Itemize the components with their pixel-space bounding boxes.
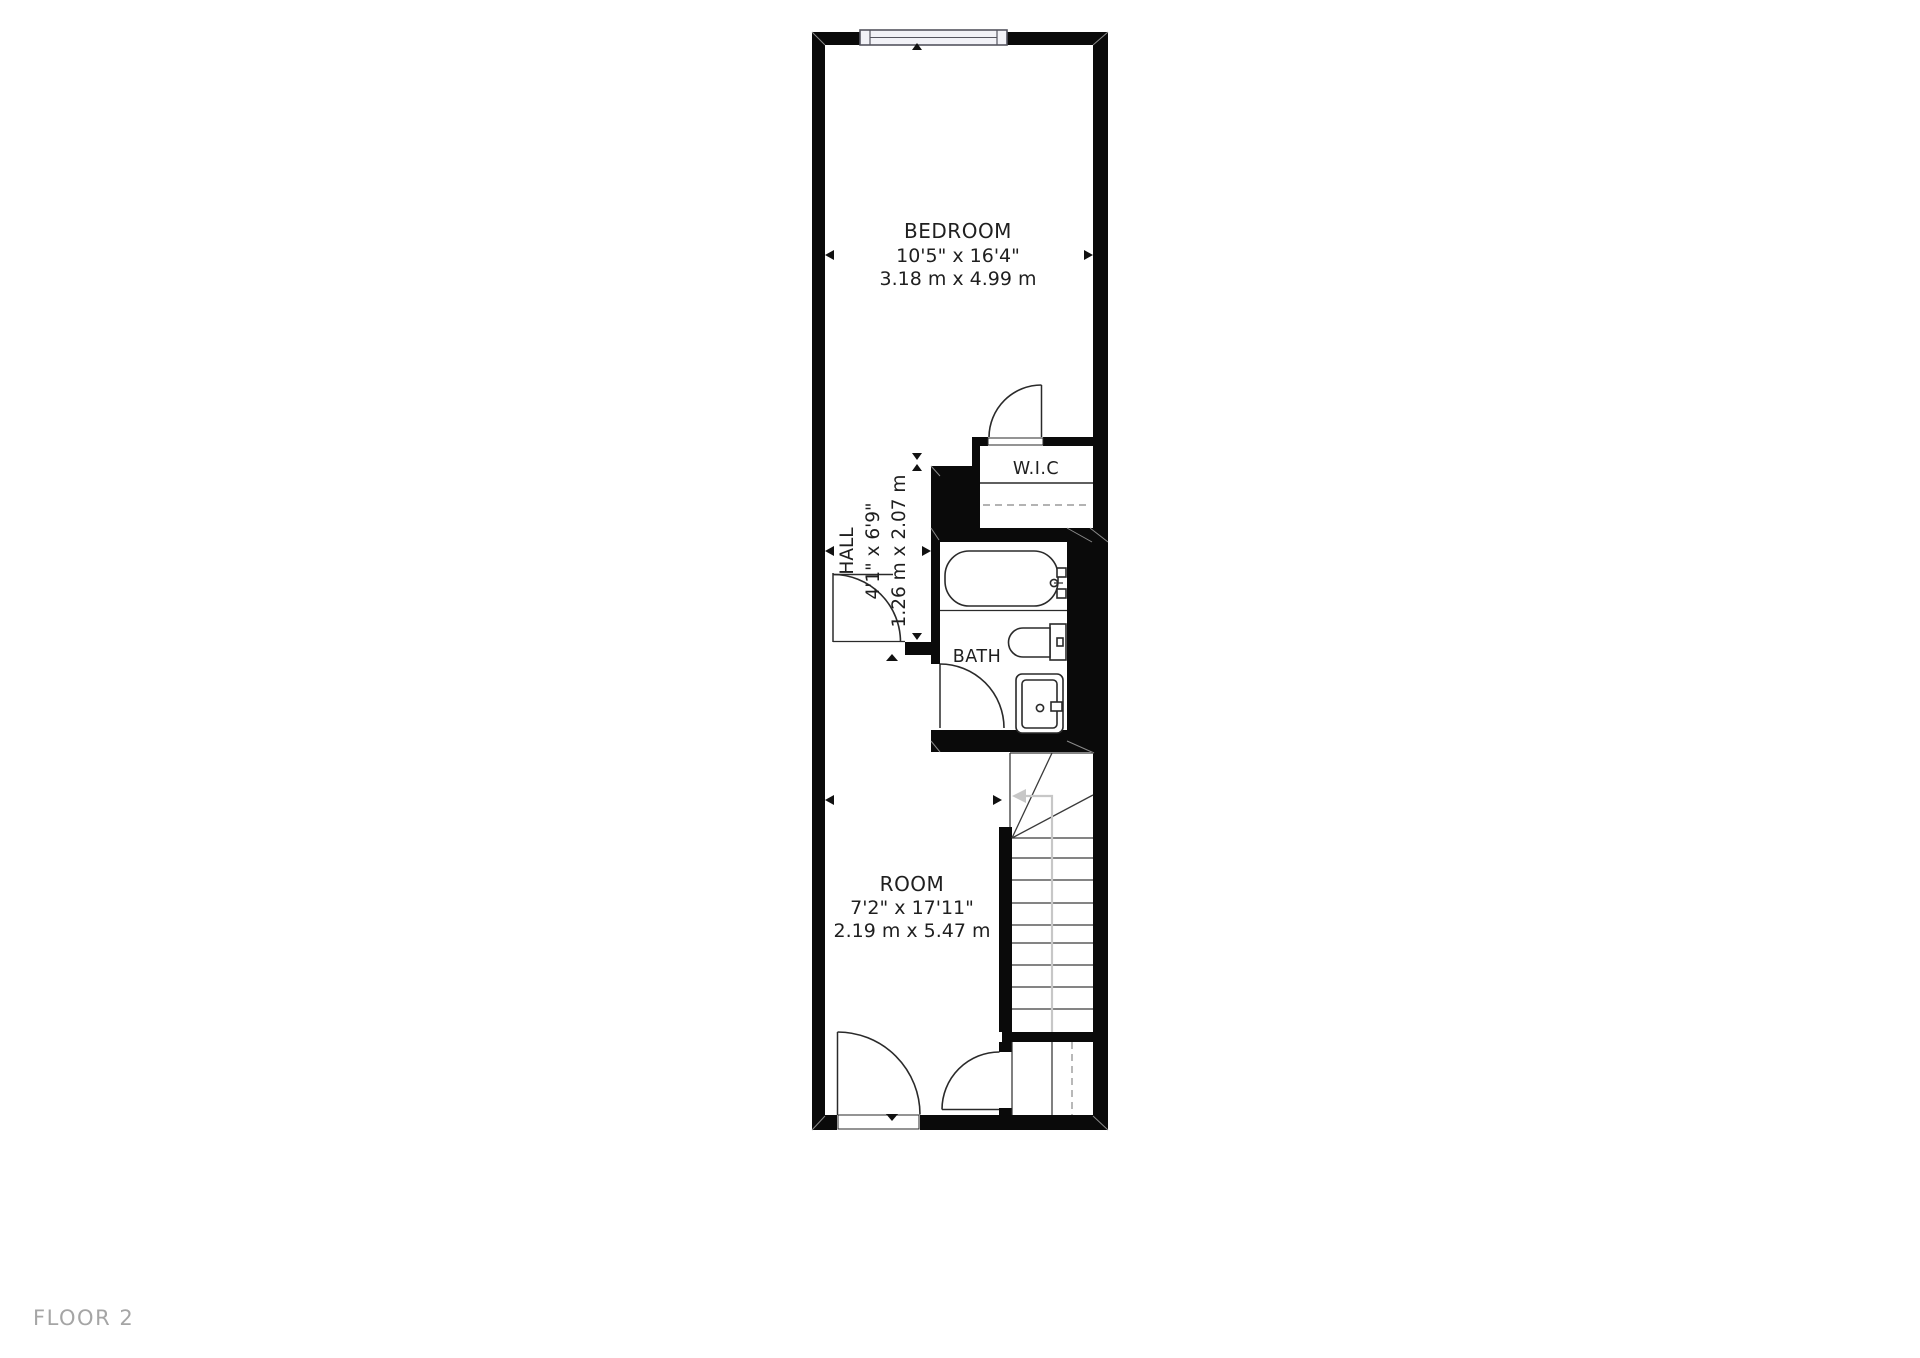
bath-door [931,664,1004,730]
hall-label: HALL 4'1" x 6'9" 1.26 m x 2.07 m [837,475,910,628]
wall-bedroom-wic-left [972,437,988,446]
room-dim-metric: 2.19 m x 5.47 m [833,920,990,942]
bedroom-width-arrow-right [1084,250,1093,260]
wall-left [812,32,825,1130]
hall-width-arrow-left [825,546,834,556]
wall-wic-left [972,446,980,466]
bedroom-name: BEDROOM [904,219,1012,243]
room-width-arrow-right [993,795,1002,805]
hall-width-arrow-right [922,546,931,556]
wall-right [1093,32,1108,1130]
entry-door [837,1032,920,1130]
hall-height-arrow-bottom [912,633,922,640]
wall-bath-right [1067,542,1093,752]
toilet [1009,624,1067,660]
wall-closet-left-top [999,1042,1012,1052]
room-name: ROOM [880,872,945,896]
room-dim-imperial: 7'2" x 17'11" [850,897,974,919]
wall-bedroom-wic-right [1043,437,1093,446]
bedroom-dim-imperial: 10'5" x 16'4" [896,245,1020,267]
window-top [860,30,1007,45]
hall-name: HALL [837,527,858,575]
shower-drain [1036,704,1043,711]
bedroom-width-arrow-left [825,250,834,260]
stair-door [942,1052,1012,1110]
wall-stairs-left [999,827,1012,1032]
wall-wic-bath-divider [931,528,1108,542]
understair-closet [1012,1042,1072,1115]
room-label: ROOM 7'2" x 17'11" 2.19 m x 5.47 m [833,872,990,942]
bath-name: BATH [953,647,1001,667]
wall-closet-left-bottom [999,1108,1012,1117]
staircase [1010,753,1093,1032]
room-width-arrow-left [825,795,834,805]
wall-stairs-bottom [1002,1032,1095,1042]
bedroom-height-arrow-bottom [912,453,922,460]
floor-plan-drawing: BEDROOM 10'5" x 16'4" 3.18 m x 4.99 m HA… [0,0,1920,1358]
shower [1016,674,1063,733]
hall-height-arrow-top [912,464,922,471]
bedroom-label: BEDROOM 10'5" x 16'4" 3.18 m x 4.99 m [879,219,1036,290]
shower-handle [1051,702,1062,711]
floor-label: FLOOR 2 [33,1306,134,1330]
bathtub [940,551,1067,611]
bath-fixtures [940,551,1067,733]
toilet-flush-button [1057,638,1063,646]
bedroom-dim-metric: 3.18 m x 4.99 m [879,268,1036,290]
wic-name: W.I.C [1013,459,1059,479]
wall-hall-bottom-stub [905,642,940,655]
wic-wardrobe [980,483,1093,505]
wic-door [988,385,1043,446]
hall-dim-metric: 1.26 m x 2.07 m [889,475,910,628]
hall-dim-imperial: 4'1" x 6'9" [863,503,884,600]
wall-mass-hall-wic [931,466,980,528]
floor-plan-page: BEDROOM 10'5" x 16'4" 3.18 m x 4.99 m HA… [0,0,1920,1358]
hall-passage-marker [886,654,898,661]
